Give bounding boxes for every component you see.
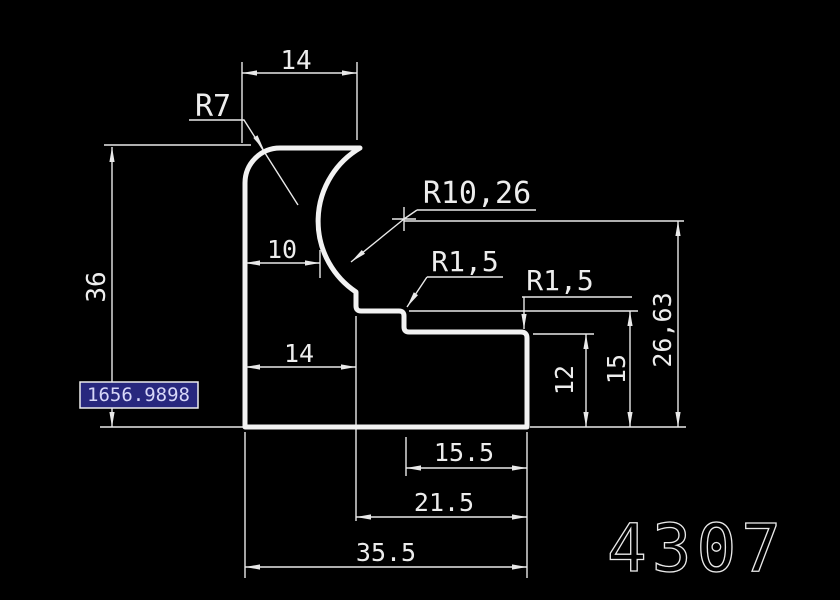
dim-fillet-block-label: R1,5 [526, 264, 593, 297]
cad-canvas: 14 R7 10 14 36 R10,26 R1,5 R1,5 12 15 26… [0, 0, 840, 600]
dim-center-height-label: 26,63 [648, 292, 677, 367]
dim-mid-width-label: 14 [284, 339, 314, 368]
dim-step-height-label: 15 [602, 354, 631, 384]
dim-lower-width-label: 21.5 [414, 488, 474, 517]
part-number: 4307 [607, 510, 786, 587]
dimension-labels: 14 R7 10 14 36 R10,26 R1,5 R1,5 12 15 26… [82, 46, 677, 567]
dimension-lines [112, 73, 678, 567]
dim-block-inner-height-label: 12 [550, 365, 579, 395]
extension-lines [100, 62, 686, 578]
coordinate-input-value[interactable]: 1656.9898 [87, 384, 190, 406]
leader-lines [189, 120, 632, 329]
dim-total-width-label: 35.5 [356, 538, 416, 567]
dim-top-width-label: 14 [280, 46, 311, 76]
dim-left-height-label: 36 [82, 271, 112, 302]
dim-radius-cove-label: R10,26 [423, 176, 531, 211]
coordinate-input[interactable]: 1656.9898 [80, 382, 198, 408]
dim-block-width-label: 15.5 [434, 438, 494, 467]
dim-cove-offset-label: 10 [267, 235, 297, 264]
dim-radius-top-left-label: R7 [195, 89, 231, 124]
cad-drawing: 14 R7 10 14 36 R10,26 R1,5 R1,5 12 15 26… [0, 0, 840, 600]
dim-fillet-step-label: R1,5 [431, 245, 498, 278]
